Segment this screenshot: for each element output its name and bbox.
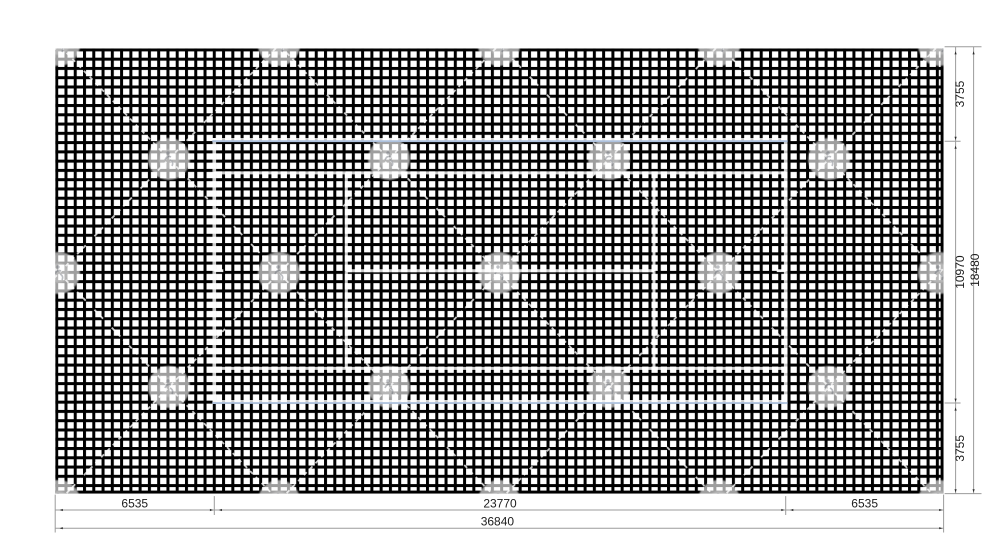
svg-text:6535: 6535 [121, 497, 148, 511]
svg-text:18480: 18480 [968, 253, 982, 287]
svg-text:10970: 10970 [953, 255, 967, 289]
svg-text:23770: 23770 [483, 497, 517, 511]
svg-text:6535: 6535 [851, 497, 878, 511]
svg-text:36840: 36840 [481, 515, 515, 529]
svg-text:3755: 3755 [953, 80, 967, 107]
svg-text:3755: 3755 [953, 435, 967, 462]
